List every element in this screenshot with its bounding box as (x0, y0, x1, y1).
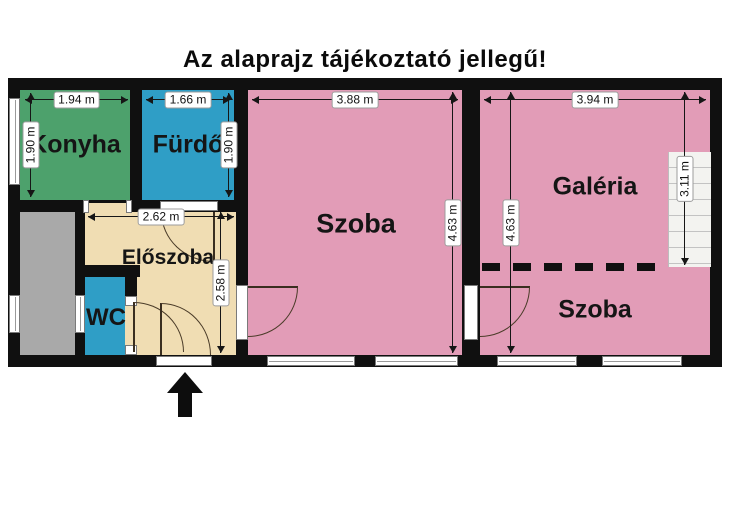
label-furdo: Fürdő (153, 131, 224, 160)
dimension-stairs-height-label: 3.11 m (677, 156, 694, 202)
entrance-arrow-shaft (178, 393, 192, 417)
dimension-stairs-height: 3.11 m (684, 92, 685, 265)
dimension-szoba1-height-label: 4.63 m (445, 199, 462, 246)
storage-wc-wall-window (75, 295, 85, 333)
konyha-window (9, 98, 20, 185)
dimension-konyha-width: 1.94 m (25, 99, 128, 100)
dimension-szoba2-height: 4.63 m (510, 92, 511, 353)
szoba1-window-left (267, 356, 355, 366)
dimension-konyha-width-label: 1.94 m (53, 92, 100, 109)
dimension-konyha-height-label: 1.90 m (23, 122, 40, 169)
dimension-furdo-width-label: 1.66 m (165, 92, 212, 109)
label-szoba1: Szoba (316, 209, 396, 240)
label-konyha: Konyha (29, 131, 121, 160)
room-storage-gray (20, 212, 75, 355)
floorplan-canvas: Az alaprajz tájékoztató jellegű! (0, 0, 730, 516)
entrance-arrow-head (167, 372, 203, 393)
plan-disclaimer-title: Az alaprajz tájékoztató jellegű! (0, 46, 730, 74)
dimension-furdo-width: 1.66 m (146, 99, 230, 100)
label-galeria: Galéria (553, 173, 638, 202)
dimension-eloszoba-height: 2.58 m (220, 212, 221, 353)
szoba1-window-right (375, 356, 458, 366)
storage-window-left (9, 295, 20, 333)
label-szoba2: Szoba (558, 296, 632, 325)
szoba2-window-left (497, 356, 577, 366)
label-wc: WC (86, 304, 126, 332)
dimension-eloszoba-width: 2.62 m (88, 216, 234, 217)
dimension-szoba1-width: 3.88 m (252, 99, 458, 100)
dimension-szoba2-width-label: 3.94 m (572, 92, 619, 109)
label-eloszoba: Előszoba (122, 246, 214, 270)
dimension-szoba2-height-label: 4.63 m (503, 199, 520, 246)
dimension-eloszoba-height-label: 2.58 m (213, 259, 230, 306)
dimension-furdo-height-label: 1.90 m (221, 122, 238, 169)
dimension-konyha-height: 1.90 m (30, 93, 31, 197)
dimension-eloszoba-width-label: 2.62 m (138, 209, 185, 226)
szoba2-window-right (602, 356, 682, 366)
dimension-szoba2-width: 3.94 m (484, 99, 706, 100)
konyha-doorway-gap (87, 203, 128, 212)
konyha-door-jamb-right (126, 200, 132, 213)
konyha-door-jamb-left (83, 200, 89, 213)
dimension-szoba1-height: 4.63 m (452, 92, 453, 353)
szoba2-door-opening (464, 285, 478, 340)
szoba1-door-opening (236, 285, 248, 340)
dimension-szoba1-width-label: 3.88 m (332, 92, 379, 109)
dimension-furdo-height: 1.90 m (228, 93, 229, 197)
entrance-arrow-icon (167, 372, 203, 417)
entrance-door-opening (156, 356, 212, 366)
